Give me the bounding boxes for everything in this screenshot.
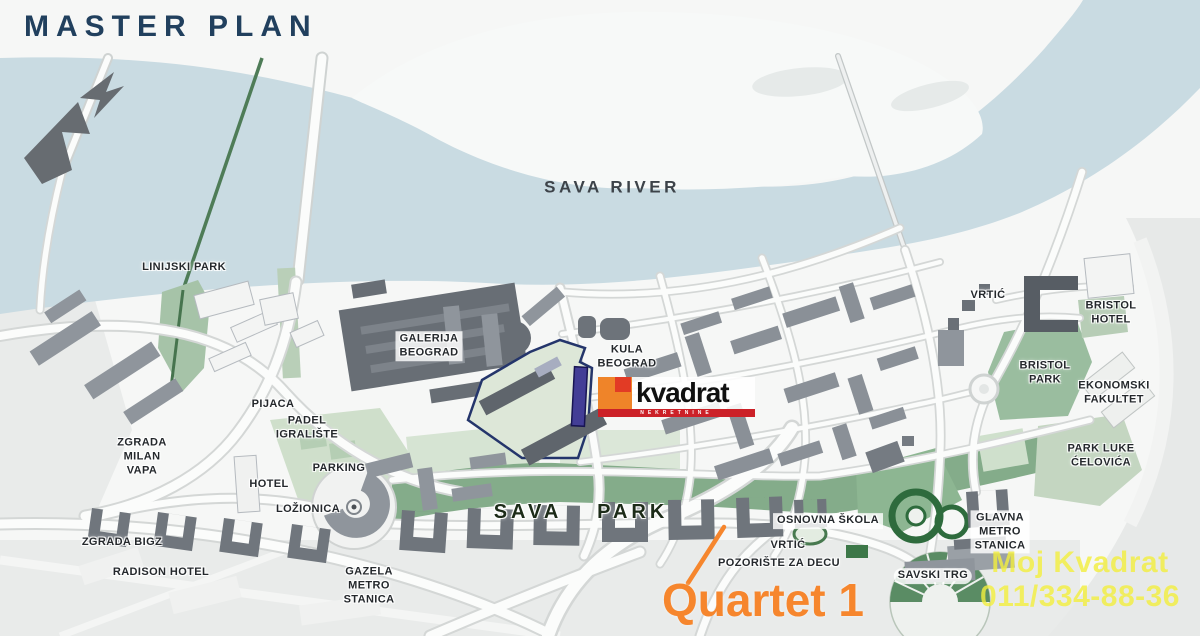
watermark-line1: Moj Kvadrat xyxy=(958,546,1200,580)
label-zgrada-milan-vapa: ZGRADA MILAN VAPA xyxy=(117,436,166,477)
quartet-annotation: Quartet 1 xyxy=(662,577,864,623)
label-pozoriste-za-decu: POZORIŠTE ZA DECU xyxy=(718,557,840,571)
label-lozionica: LOŽIONICA xyxy=(276,503,340,517)
master-plan-map: MASTER PLAN SAVA RIVER LINIJSKI PARK GAL… xyxy=(0,0,1200,636)
label-hotel: HOTEL xyxy=(249,478,288,492)
label-padel-igraliste: PADEL IGRALIŠTE xyxy=(276,414,338,442)
watermark: Moj Kvadrat 011/334-88-36 xyxy=(958,546,1200,614)
kvadrat-logo-text: kvadrat xyxy=(632,377,755,409)
label-linijski-park: LINIJSKI PARK xyxy=(142,261,226,275)
page-title: MASTER PLAN xyxy=(24,12,318,42)
kvadrat-logo-square-icon xyxy=(598,377,632,409)
label-kula-beograd: KULA BEOGRAD xyxy=(597,343,656,371)
label-park-luke-celovica: PARK LUKE ĆELOVIĆA xyxy=(1068,442,1135,470)
label-zgrada-bigz: ZGRADA BIGZ xyxy=(82,536,162,550)
kvadrat-logo-tagline: NEKRETNINE xyxy=(598,409,755,417)
label-bristol-park: BRISTOL PARK xyxy=(1020,359,1071,387)
label-bristol-hotel: BRISTOL HOTEL xyxy=(1086,299,1137,327)
label-galerija-beograd: GALERIJA BEOGRAD xyxy=(395,331,462,361)
kvadrat-logo: kvadrat NEKRETNINE xyxy=(598,377,755,417)
watermark-line2: 011/334-88-36 xyxy=(958,580,1200,614)
kula-beograd-building xyxy=(578,316,596,338)
site-marker xyxy=(571,367,587,427)
label-radison-hotel: RADISON HOTEL xyxy=(113,566,209,580)
label-vrtic-center: VRTIĆ xyxy=(771,539,806,553)
label-sava-park: SAVA PARK xyxy=(494,502,669,522)
kvadrat-logo-red-square-icon xyxy=(615,377,631,392)
label-osnovna-skola: OSNOVNA ŠKOLA xyxy=(773,513,883,529)
label-parking: PARKING xyxy=(313,462,366,476)
label-sava-river: SAVA RIVER xyxy=(544,179,680,196)
label-gazela-metro-stanica: GAZELA METRO STANICA xyxy=(344,565,395,606)
label-ekonomski-fakultet: EKONOMSKI FAKULTET xyxy=(1078,379,1149,407)
label-pijaca: PIJACA xyxy=(252,398,295,412)
label-vrtic-north: VRTIĆ xyxy=(971,289,1006,303)
bristol-hotel-building xyxy=(1084,254,1134,299)
